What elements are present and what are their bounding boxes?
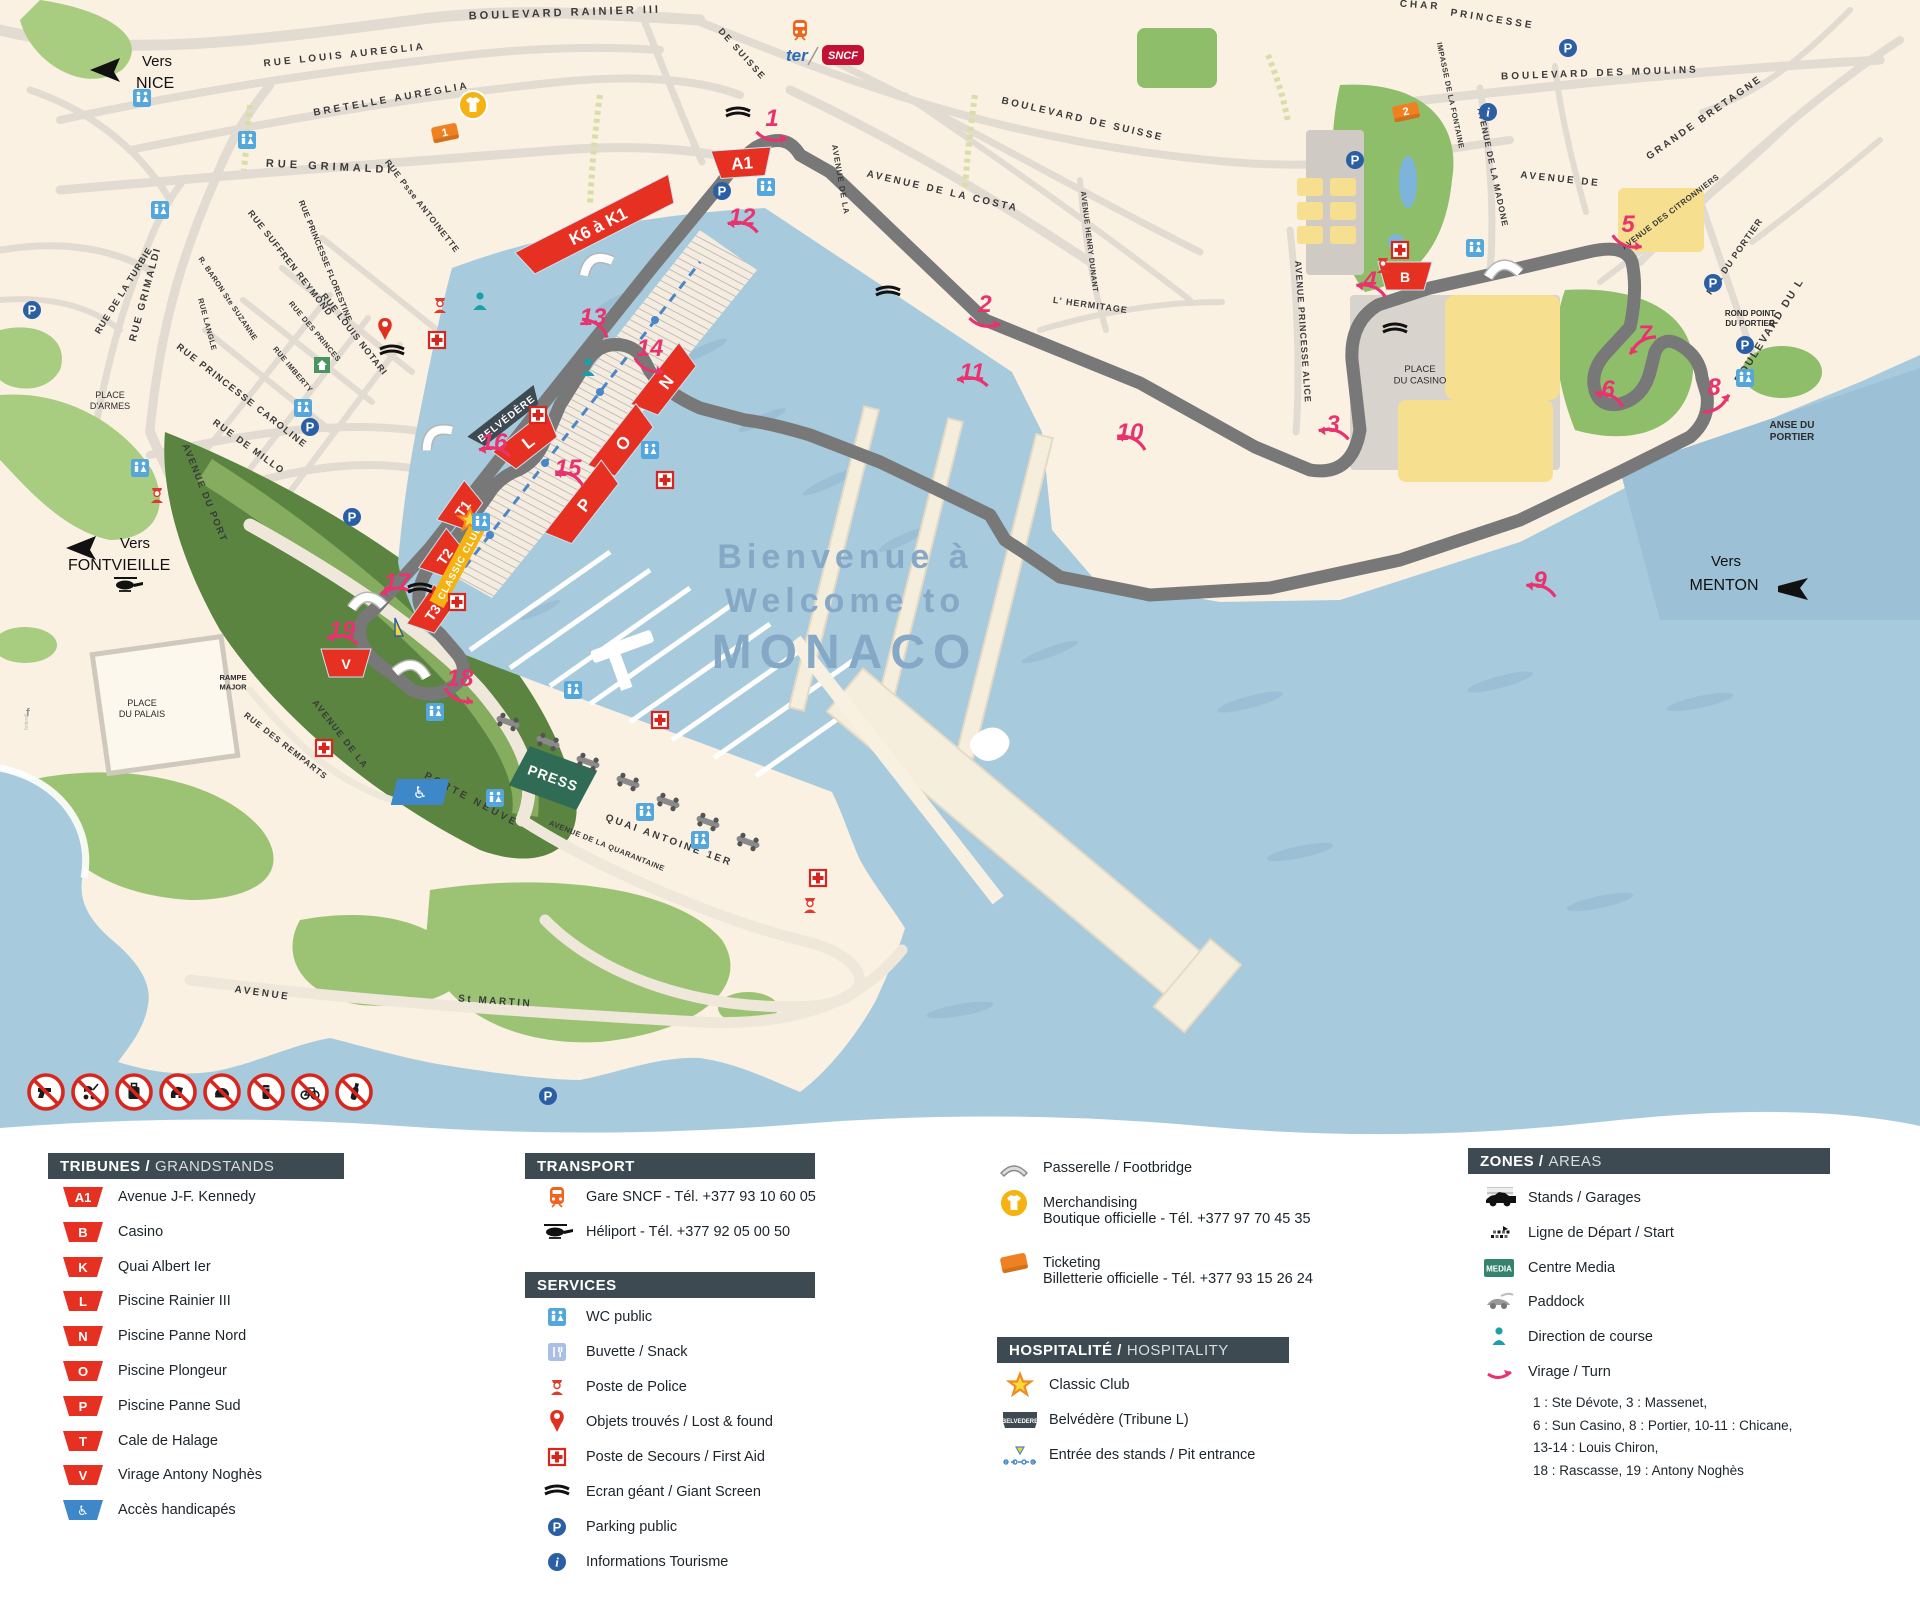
legend-tribune-P-label: Piscine Panne Sud bbox=[118, 1398, 241, 1414]
wc-icon bbox=[151, 201, 169, 219]
svg-text:V: V bbox=[79, 1468, 88, 1483]
place-du-palais-square bbox=[92, 637, 237, 774]
park-icon: P bbox=[23, 301, 41, 319]
map-svg: BOULEVARD RAINIER IIIRUE LOUIS AUREGLIAB… bbox=[0, 0, 1920, 1150]
person-icon bbox=[1482, 1322, 1516, 1352]
svg-text:DU PORTIER: DU PORTIER bbox=[1725, 319, 1775, 328]
legend-turn-note: 13-14 : Louis Chiron, bbox=[1533, 1440, 1658, 1455]
legend-zones-header-title2: AREAS bbox=[1549, 1153, 1602, 1170]
svg-text:17: 17 bbox=[384, 569, 412, 596]
svg-text:3: 3 bbox=[1326, 411, 1340, 438]
no-strollers-icon bbox=[73, 1075, 107, 1109]
info-icon: i bbox=[540, 1547, 574, 1577]
legend-zone-media: MEDIACentre Media bbox=[1482, 1255, 1615, 1281]
legend-tribune-T: TCale de Halage bbox=[60, 1428, 218, 1454]
legend-transport-train: Gare SNCF - Tél. +377 93 10 60 05 bbox=[540, 1184, 816, 1210]
svg-text:BELVEDERE: BELVEDERE bbox=[1003, 1419, 1037, 1425]
no-dogs-icon bbox=[161, 1075, 195, 1109]
wc-icon bbox=[426, 703, 444, 721]
legend-service-park: PParking public bbox=[540, 1514, 677, 1540]
info-icon: i bbox=[1479, 103, 1497, 121]
legend-tribune-V-label: Virage Antony Noghès bbox=[118, 1467, 262, 1483]
tribune-seat-icon: V bbox=[60, 1461, 106, 1489]
legend-tribune-O-label: Piscine Plongeur bbox=[118, 1363, 227, 1379]
legend-zone-startline: Ligne de Départ / Start bbox=[1482, 1220, 1674, 1246]
no-luggage-icon bbox=[117, 1075, 151, 1109]
legend-transport-heli-label: Héliport - Tél. +377 92 05 00 50 bbox=[586, 1224, 790, 1240]
legend-tribunes-header-title2: GRANDSTANDS bbox=[155, 1158, 274, 1175]
buvette-icon bbox=[540, 1337, 574, 1367]
aid-icon bbox=[449, 594, 465, 610]
wc-icon bbox=[486, 789, 504, 807]
svg-text:FONTVIEILLE: FONTVIEILLE bbox=[68, 557, 170, 574]
startline-icon bbox=[1482, 1218, 1516, 1248]
svg-text:O: O bbox=[78, 1364, 88, 1379]
merch-icon bbox=[459, 91, 487, 119]
wc-icon bbox=[757, 178, 775, 196]
legend-ticket-label: Ticketing bbox=[1043, 1255, 1100, 1271]
svg-text:15: 15 bbox=[555, 455, 582, 482]
svg-text:19: 19 bbox=[329, 617, 356, 644]
legend-service-aid: Poste de Secours / First Aid bbox=[540, 1444, 765, 1470]
legend-tribune-♿: ♿Accès handicapés bbox=[60, 1497, 236, 1523]
svg-text:7: 7 bbox=[1638, 321, 1653, 348]
tribune-seat-icon: K bbox=[60, 1253, 106, 1281]
legend-turn-note: 6 : Sun Casino, 8 : Portier, 10-11 : Chi… bbox=[1533, 1418, 1792, 1433]
place-label: ANSE DUPORTIER bbox=[1769, 420, 1815, 443]
wc-icon bbox=[238, 131, 256, 149]
svg-text:P: P bbox=[718, 184, 727, 199]
legend-tribune-K-label: Quai Albert Ier bbox=[118, 1259, 211, 1275]
media-icon: MEDIA bbox=[1482, 1253, 1516, 1283]
no-cans-icon bbox=[249, 1075, 283, 1109]
wc-icon bbox=[641, 441, 659, 459]
legend-zone-f1car-label: Stands / Garages bbox=[1528, 1190, 1641, 1206]
aid-icon bbox=[657, 472, 673, 488]
legend-tribune-N: NPiscine Panne Nord bbox=[60, 1323, 246, 1349]
svg-text:4: 4 bbox=[1362, 267, 1376, 294]
no-bicycles-icon bbox=[293, 1075, 327, 1109]
svg-text:10: 10 bbox=[1117, 419, 1144, 446]
wc-icon bbox=[636, 803, 654, 821]
aid-icon bbox=[530, 407, 546, 423]
sncf-logo: SNCF bbox=[828, 50, 858, 62]
legend-transport-header: TRANSPORT bbox=[525, 1153, 815, 1179]
ticket-icon bbox=[1000, 1252, 1029, 1273]
tribune-seat-icon: N bbox=[60, 1322, 106, 1350]
turn-marker-16: 16 bbox=[479, 429, 511, 460]
svg-text:i: i bbox=[555, 1555, 559, 1570]
svg-text:18: 18 bbox=[447, 665, 474, 692]
svg-text:Vers: Vers bbox=[120, 535, 150, 552]
turn-marker-11: 11 bbox=[957, 359, 989, 390]
legend-tribune-♿-label: Accès handicapés bbox=[118, 1502, 236, 1518]
pit-icon bbox=[1003, 1440, 1037, 1470]
svg-text:PLACE: PLACE bbox=[127, 698, 157, 708]
aid-icon bbox=[540, 1442, 574, 1472]
place-label: ROND POINTDU PORTIER bbox=[1725, 309, 1775, 328]
svg-text:P: P bbox=[544, 1089, 553, 1104]
legend-hospitality-belvedere-label: Belvédère (Tribune L) bbox=[1049, 1412, 1189, 1428]
welcome-text: Bienvenue àWelcome toMONACO bbox=[712, 538, 979, 679]
handicap-seat-icon: ♿ bbox=[60, 1496, 106, 1524]
legend-service-police-label: Poste de Police bbox=[586, 1379, 687, 1395]
legend-tribunes-header-title: TRIBUNES / bbox=[60, 1158, 150, 1175]
legend-service-aid-label: Poste de Secours / First Aid bbox=[586, 1449, 765, 1465]
no-bottles-icon bbox=[337, 1075, 371, 1109]
aid-icon bbox=[652, 712, 668, 728]
legend-tribune-T-label: Cale de Halage bbox=[118, 1433, 218, 1449]
svg-text:Bienvenue à: Bienvenue à bbox=[717, 538, 972, 576]
park-icon: P bbox=[1736, 336, 1754, 354]
svg-text:i: i bbox=[1486, 105, 1490, 120]
legend-tribune-A1-label: Avenue J-F. Kennedy bbox=[118, 1189, 256, 1205]
park-icon: P bbox=[301, 418, 319, 436]
legend-tribune-B-label: Casino bbox=[118, 1224, 163, 1240]
wc-icon bbox=[294, 399, 312, 417]
legend-service-buvette-label: Buvette / Snack bbox=[586, 1344, 688, 1360]
svg-text:11: 11 bbox=[960, 359, 985, 386]
svg-text:14: 14 bbox=[637, 335, 664, 362]
aid-icon bbox=[429, 332, 445, 348]
legend-zones-header: ZONES /AREAS bbox=[1468, 1148, 1830, 1174]
legend-service-pin-label: Objets trouvés / Lost & found bbox=[586, 1414, 773, 1430]
svg-text:L: L bbox=[79, 1294, 87, 1309]
grandstand-marker-A1: A1 bbox=[711, 147, 773, 179]
legend-tribune-B: BCasino bbox=[60, 1219, 163, 1245]
svg-text:P: P bbox=[1709, 276, 1718, 291]
legend-hospitality-pit-label: Entrée des stands / Pit entrance bbox=[1049, 1447, 1255, 1463]
svg-text:P: P bbox=[79, 1399, 88, 1414]
svg-text:16: 16 bbox=[481, 429, 508, 456]
legend-services-header: SERVICES bbox=[525, 1272, 815, 1298]
legend-hospitality-header-title: HOSPITALITÉ / bbox=[1009, 1342, 1122, 1359]
wc-icon bbox=[131, 459, 149, 477]
turn-marker-19: 19 bbox=[327, 617, 359, 648]
svg-text:P: P bbox=[1741, 338, 1750, 353]
ticket-icon bbox=[997, 1248, 1031, 1278]
legend-tribune-L: LPiscine Rainier III bbox=[60, 1288, 231, 1314]
svg-text:MONACO: MONACO bbox=[712, 626, 979, 679]
house-icon bbox=[314, 357, 330, 373]
legend-service-wc-label: WC public bbox=[586, 1309, 652, 1325]
svg-text:PLACE: PLACE bbox=[95, 390, 125, 400]
svg-text:12: 12 bbox=[729, 204, 756, 231]
no-helmets-icon bbox=[205, 1075, 239, 1109]
grandstand-marker-V: V bbox=[321, 649, 371, 677]
legend-service-police: Poste de Police bbox=[540, 1374, 687, 1400]
monaco-gp-map-poster: BOULEVARD RAINIER IIIRUE LOUIS AUREGLIAB… bbox=[0, 0, 1920, 1614]
legend-tribunes-header: TRIBUNES /GRANDSTANDS bbox=[48, 1153, 344, 1179]
legend-tribune-L-label: Piscine Rainier III bbox=[118, 1293, 231, 1309]
legend-zone-startline-label: Ligne de Départ / Start bbox=[1528, 1225, 1674, 1241]
tribune-seat-icon: P bbox=[60, 1392, 106, 1420]
svg-text:DU PALAIS: DU PALAIS bbox=[119, 709, 165, 719]
svg-text:P: P bbox=[1351, 153, 1360, 168]
svg-text:8: 8 bbox=[1707, 374, 1721, 401]
svg-text:federall: federall bbox=[24, 714, 30, 730]
wc-icon bbox=[564, 681, 582, 699]
wc-icon bbox=[691, 831, 709, 849]
legend-tribune-N-label: Piscine Panne Nord bbox=[118, 1328, 246, 1344]
legend-ticket-sub: Billetterie officielle - Tél. +377 93 15… bbox=[1043, 1271, 1313, 1287]
legend-zone-person-label: Direction de course bbox=[1528, 1329, 1653, 1345]
legend-zone-turn-label: Virage / Turn bbox=[1528, 1364, 1611, 1380]
pin-icon bbox=[540, 1407, 574, 1437]
handicap-icon: ♿ bbox=[391, 779, 449, 805]
park-icon: P bbox=[540, 1512, 574, 1542]
legend-tribune-K: KQuai Albert Ier bbox=[60, 1254, 211, 1280]
svg-text:Vers: Vers bbox=[142, 53, 172, 70]
svg-text:RAMPE: RAMPE bbox=[219, 673, 246, 682]
svg-text:PORTIER: PORTIER bbox=[1770, 432, 1815, 443]
legend-bridgeleg-label: Passerelle / Footbridge bbox=[1043, 1160, 1192, 1176]
legend-service-screen-label: Ecran géant / Giant Screen bbox=[586, 1484, 761, 1500]
svg-text:9: 9 bbox=[1533, 567, 1547, 594]
screen-icon bbox=[540, 1477, 574, 1507]
svg-text:PLACE: PLACE bbox=[1404, 364, 1435, 375]
legend-merch-label: Merchandising bbox=[1043, 1195, 1137, 1211]
place-label: PLACED'ARMES bbox=[90, 390, 130, 411]
legend-turn-note: 18 : Rascasse, 19 : Antony Noghès bbox=[1533, 1463, 1744, 1478]
legend-service-buvette: Buvette / Snack bbox=[540, 1339, 688, 1365]
svg-text:B: B bbox=[78, 1225, 87, 1240]
legend-zone-media-label: Centre Media bbox=[1528, 1260, 1615, 1276]
park-icon: P bbox=[713, 182, 731, 200]
merch-icon bbox=[997, 1188, 1031, 1218]
legend-zone-paddock: Paddock bbox=[1482, 1289, 1584, 1315]
aid-icon bbox=[810, 870, 826, 886]
svg-text:1: 1 bbox=[765, 105, 778, 132]
wc-icon bbox=[1736, 369, 1754, 387]
legend-hospitality-star: Classic Club bbox=[1003, 1372, 1130, 1398]
svg-text:A1: A1 bbox=[731, 153, 754, 173]
park-icon: P bbox=[539, 1087, 557, 1105]
svg-text:N: N bbox=[78, 1329, 87, 1344]
legend-merch-sub: Boutique officielle - Tél. +377 97 70 45… bbox=[1043, 1211, 1311, 1227]
park-icon: P bbox=[1704, 274, 1722, 292]
place-label: RAMPEMAJOR bbox=[219, 673, 247, 692]
legend-tribune-V: VVirage Antony Noghès bbox=[60, 1462, 262, 1488]
legend-zone-f1car: Stands / Garages bbox=[1482, 1185, 1641, 1211]
svg-text:6: 6 bbox=[1601, 376, 1615, 403]
heli-icon bbox=[540, 1217, 574, 1247]
svg-text:♿: ♿ bbox=[413, 785, 427, 802]
svg-text:5: 5 bbox=[1621, 211, 1635, 238]
legend-service-screen: Ecran géant / Giant Screen bbox=[540, 1479, 761, 1505]
wc-icon bbox=[133, 89, 151, 107]
legend-hospitality-star-label: Classic Club bbox=[1049, 1377, 1130, 1393]
turn-icon bbox=[1482, 1357, 1516, 1387]
rail-logos: terSNCF bbox=[786, 45, 864, 65]
svg-text:D'ARMES: D'ARMES bbox=[90, 401, 130, 411]
tribune-seat-icon: T bbox=[60, 1427, 106, 1455]
legend-zone-turn: Virage / Turn bbox=[1482, 1359, 1611, 1385]
wc-icon bbox=[540, 1302, 574, 1332]
svg-text:K: K bbox=[78, 1260, 88, 1275]
legend-transport-header-title: TRANSPORT bbox=[537, 1158, 635, 1175]
no-firearms-icon bbox=[29, 1075, 63, 1109]
legend-service-pin: Objets trouvés / Lost & found bbox=[540, 1409, 773, 1435]
turn-marker-17: 17 bbox=[381, 569, 412, 596]
legend-service-info-label: Informations Tourisme bbox=[586, 1554, 728, 1570]
grandstand-marker-B: B bbox=[1378, 262, 1432, 290]
legend-zone-paddock-label: Paddock bbox=[1528, 1294, 1584, 1310]
legend-service-wc: WC public bbox=[540, 1304, 652, 1330]
legend-turn-note: 1 : Ste Dévote, 3 : Massenet, bbox=[1533, 1395, 1707, 1410]
svg-text:A1: A1 bbox=[75, 1190, 92, 1205]
legend-tribune-O: OPiscine Plongeur bbox=[60, 1358, 227, 1384]
legend-panel: TRIBUNES /GRANDSTANDSA1Avenue J-F. Kenne… bbox=[0, 1150, 1920, 1614]
svg-text:P: P bbox=[348, 510, 357, 525]
tribune-seat-icon: A1 bbox=[60, 1183, 106, 1211]
svg-text:Vers: Vers bbox=[1711, 553, 1741, 570]
legend-transport-heli: Héliport - Tél. +377 92 05 00 50 bbox=[540, 1219, 790, 1245]
svg-text:2: 2 bbox=[977, 291, 992, 318]
star-icon bbox=[1003, 1370, 1037, 1400]
svg-text:DU CASINO: DU CASINO bbox=[1394, 376, 1447, 387]
wc-icon bbox=[472, 513, 490, 531]
legend-hospitality-belvedere: BELVEDEREBelvédère (Tribune L) bbox=[1003, 1407, 1189, 1433]
train-icon bbox=[540, 1182, 574, 1212]
legend-transport-train-label: Gare SNCF - Tél. +377 93 10 60 05 bbox=[586, 1189, 816, 1205]
park-icon: P bbox=[1559, 39, 1577, 57]
svg-text:13: 13 bbox=[580, 304, 607, 331]
aid-icon bbox=[316, 740, 332, 756]
svg-text:B: B bbox=[1400, 269, 1410, 285]
svg-text:Welcome to: Welcome to bbox=[725, 582, 965, 620]
svg-text:T: T bbox=[79, 1434, 87, 1449]
tribune-seat-icon: B bbox=[60, 1218, 106, 1246]
tribune-seat-icon: L bbox=[60, 1287, 106, 1315]
f1car-icon bbox=[1482, 1183, 1516, 1213]
park-icon: P bbox=[1346, 151, 1364, 169]
legend-hospitality-header: HOSPITALITÉ /HOSPITALITY bbox=[997, 1337, 1289, 1363]
ter-logo: ter bbox=[786, 46, 809, 65]
park-icon: P bbox=[343, 508, 361, 526]
svg-text:ANSE DU: ANSE DU bbox=[1769, 420, 1814, 431]
legend-bridgeleg: Passerelle / Footbridge bbox=[997, 1155, 1192, 1181]
circuit-map: BOULEVARD RAINIER IIIRUE LOUIS AUREGLIAB… bbox=[0, 0, 1920, 1150]
legend-zones-header-title: ZONES / bbox=[1480, 1153, 1544, 1170]
svg-text:P: P bbox=[306, 420, 315, 435]
svg-text:MEDIA: MEDIA bbox=[1486, 1264, 1512, 1273]
svg-text:P: P bbox=[1564, 41, 1573, 56]
bridgeleg-icon bbox=[997, 1153, 1031, 1183]
legend-service-info: iInformations Tourisme bbox=[540, 1549, 728, 1575]
legend-hospitality-header-title2: HOSPITALITY bbox=[1127, 1342, 1229, 1359]
legend-tribune-P: PPiscine Panne Sud bbox=[60, 1393, 241, 1419]
belvedere-icon: BELVEDERE bbox=[1003, 1405, 1037, 1435]
legend-tribune-A1: A1Avenue J-F. Kennedy bbox=[60, 1184, 256, 1210]
wc-icon bbox=[1466, 239, 1484, 257]
svg-text:P: P bbox=[553, 1520, 562, 1535]
svg-text:MENTON: MENTON bbox=[1689, 577, 1758, 594]
tribune-seat-icon: O bbox=[60, 1357, 106, 1385]
svg-text:V: V bbox=[341, 656, 351, 672]
aid-icon bbox=[1392, 242, 1408, 258]
legend-services-header-title: SERVICES bbox=[537, 1277, 617, 1294]
svg-text:ROND POINT: ROND POINT bbox=[1725, 309, 1775, 318]
svg-text:P: P bbox=[28, 303, 37, 318]
legend-zone-person: Direction de course bbox=[1482, 1324, 1653, 1350]
svg-text:MAJOR: MAJOR bbox=[219, 683, 247, 692]
police-icon bbox=[540, 1372, 574, 1402]
legend-hospitality-pit: Entrée des stands / Pit entrance bbox=[1003, 1442, 1255, 1468]
legend-service-park-label: Parking public bbox=[586, 1519, 677, 1535]
svg-text:♿: ♿ bbox=[77, 1503, 89, 1518]
paddock-icon bbox=[1482, 1287, 1516, 1317]
